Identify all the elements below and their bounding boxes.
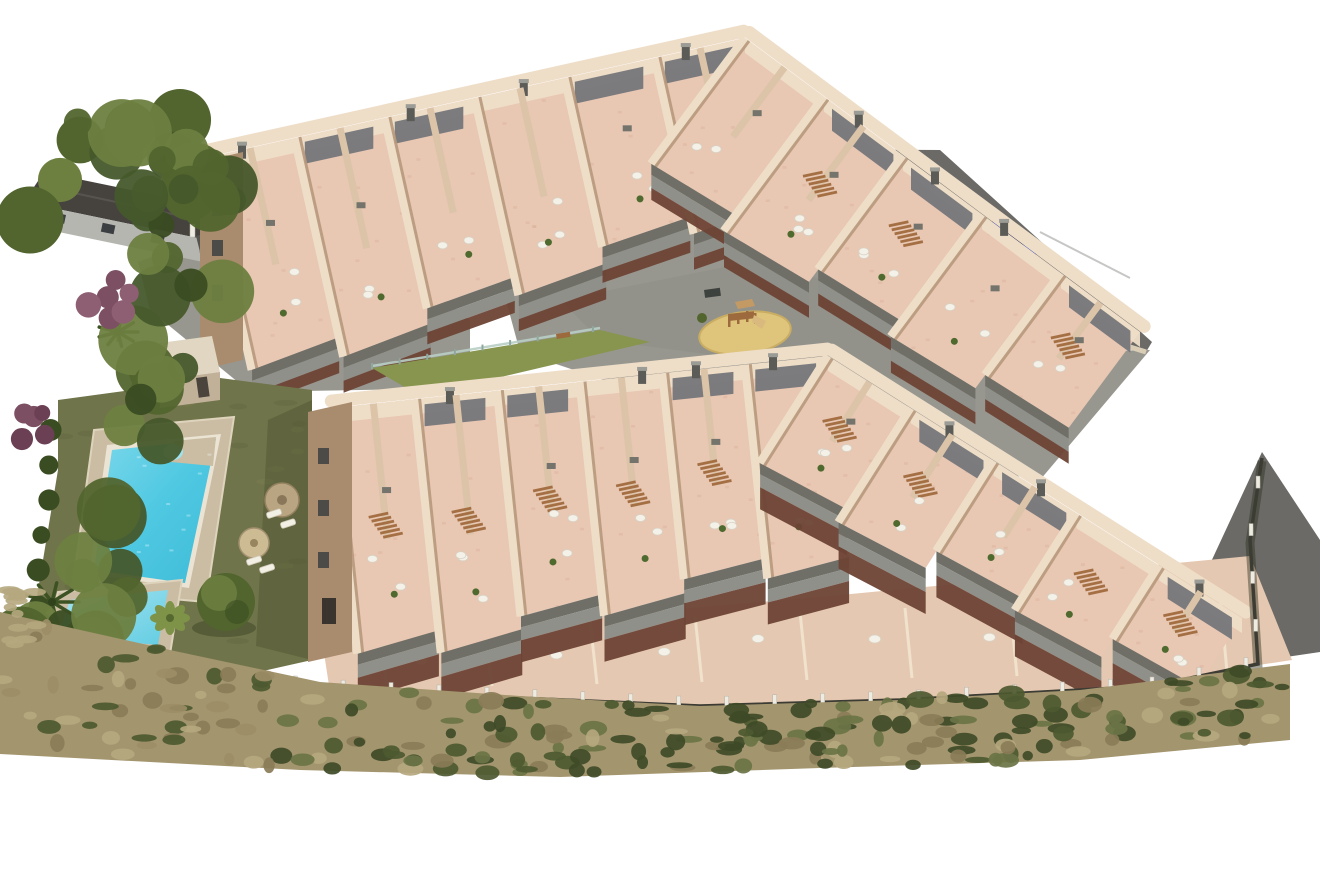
aerial-render — [0, 0, 1320, 895]
aerial-site — [0, 0, 1320, 895]
